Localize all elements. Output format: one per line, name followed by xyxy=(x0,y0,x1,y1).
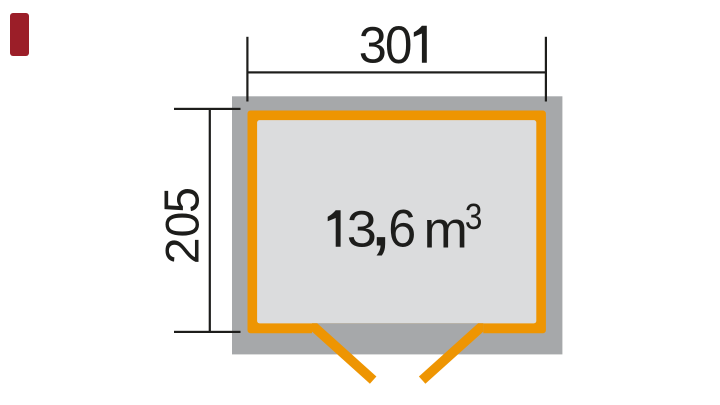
svg-text:0: 0 xyxy=(156,212,209,238)
svg-text:3: 3 xyxy=(359,17,387,74)
svg-text:0: 0 xyxy=(385,16,412,75)
svg-text:3: 3 xyxy=(465,197,482,238)
svg-text:m: m xyxy=(424,201,468,259)
svg-text:5: 5 xyxy=(156,187,210,213)
svg-text:2: 2 xyxy=(157,237,210,264)
svg-text:6: 6 xyxy=(388,198,416,257)
